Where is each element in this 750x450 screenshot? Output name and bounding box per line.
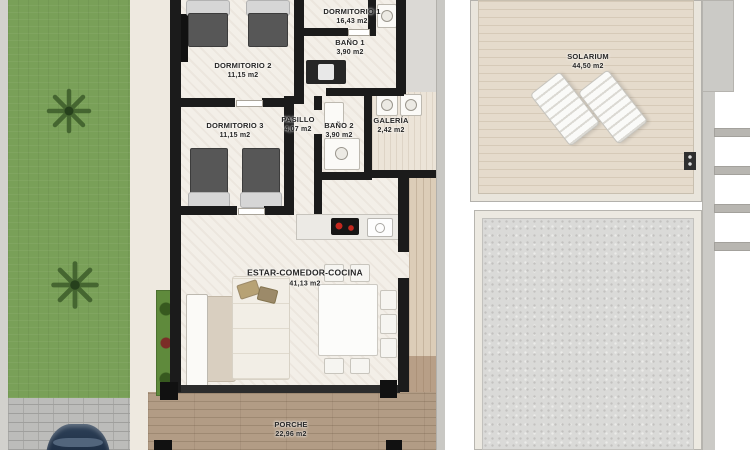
porch-pillar [154,440,172,450]
wall [398,278,409,392]
garden-lawn [8,0,130,398]
car-windshield [53,438,103,447]
gravel-plot-frame [474,210,702,450]
wall [364,96,372,180]
bed-mattress [188,13,228,47]
porch-pillar [380,380,397,398]
room-name: DORMITORIO 2 [214,60,271,71]
stair-rung [714,204,750,213]
room-label-dormitorio-2: DORMITORIO 2 11,15 m2 [214,60,271,82]
room-label-dormitorio-1: DORMITORIO 1 16,43 m2 [323,6,380,28]
side-terrace-dark-end [409,356,436,392]
right-fence-head [702,0,734,92]
wall [294,88,302,96]
wall [264,206,294,215]
single-bed [246,0,290,46]
wall [398,178,409,252]
room-name: BAÑO 2 [324,120,354,131]
wall [326,88,404,96]
room-area: 41,13 m2 [289,279,320,290]
room-area: 2,42 m2 [377,126,404,137]
dining-chair [350,358,370,374]
porch-pillar [386,440,402,450]
washer-door [405,99,417,111]
room-name: SOLARIUM [567,51,609,62]
wall [181,206,237,215]
wall [181,98,235,107]
room-label-bano-1: BAÑO 1 3,90 m2 [335,37,365,59]
stair-rung [714,128,750,137]
single-bed [188,148,230,208]
plot-boundary-wall [436,0,445,450]
washbasin-vanity [306,60,346,84]
gravel-plot [482,218,694,450]
shower-drain [335,147,348,160]
room-area: 3,90 m2 [325,131,352,142]
room-name: DORMITORIO 3 [206,120,263,131]
room-label-solarium: SOLARIUM 44,50 m2 [567,51,609,73]
room-area: 4,07 m2 [284,125,311,136]
roof-hatch-icon [684,152,696,170]
room-area: 44,50 m2 [572,62,603,73]
single-bed [186,0,230,46]
room-name: BAÑO 1 [335,37,365,48]
sink-drain [375,223,385,233]
kitchen-sink [367,218,393,237]
room-name: PASILLO [281,114,314,125]
cooktop [331,218,359,235]
room-name: DORMITORIO 1 [323,6,380,17]
dining-table [318,284,378,356]
room-label-pasillo: PASILLO 4,07 m2 [281,114,314,136]
exterior-corner-pad [406,0,436,92]
glazed-wall [170,385,400,393]
bed-mattress [190,148,228,194]
kitchen-counter [296,214,400,240]
dining-chair [380,338,397,358]
room-label-bano-2: BAÑO 2 3,90 m2 [324,120,354,142]
room-area: 16,43 m2 [336,17,367,28]
dining-chair [324,358,344,374]
single-bed [240,148,282,208]
room-area: 11,15 m2 [228,71,259,82]
room-area: 3,90 m2 [336,48,363,59]
wall [314,96,322,110]
wall [372,170,436,178]
room-area: 11,15 m2 [220,131,251,142]
bed-mattress [248,13,288,47]
room-label-dormitorio-3: DORMITORIO 3 11,15 m2 [206,120,263,142]
door-leaf [348,29,370,36]
room-name: PORCHE [274,419,307,430]
sink-basin [318,64,334,80]
room-label-estar-comedor-cocina: ESTAR-COMEDOR-COCINA 41,13 m2 [247,266,363,289]
room-label-galeria: GALERÍA 2,42 m2 [373,115,408,137]
toilet-bowl [381,10,393,22]
wall [314,172,372,180]
wall [396,0,406,94]
porch-pillar [160,382,178,400]
room-area: 22,96 m2 [275,430,306,441]
washer-door [381,99,393,111]
dining-chair [380,290,397,310]
room-name: GALERÍA [373,115,408,126]
palm-tree-icon [40,82,98,140]
wall [262,98,294,107]
room-label-porche: PORCHE 22,96 m2 [274,419,307,441]
floor-plan: DORMITORIO 1 16,43 m2 BAÑO 1 3,90 m2 DOR… [0,0,750,450]
palm-tree-icon [44,254,106,316]
wall [170,0,181,392]
stair-rung [714,242,750,251]
bed-mattress [242,148,280,194]
stair-rung [714,166,750,175]
dining-chair [380,314,397,334]
sideboard [186,294,208,388]
wall [294,28,348,36]
door-leaf [236,100,263,107]
door-leaf [238,208,265,215]
room-name: ESTAR-COMEDOR-COCINA [247,266,363,279]
